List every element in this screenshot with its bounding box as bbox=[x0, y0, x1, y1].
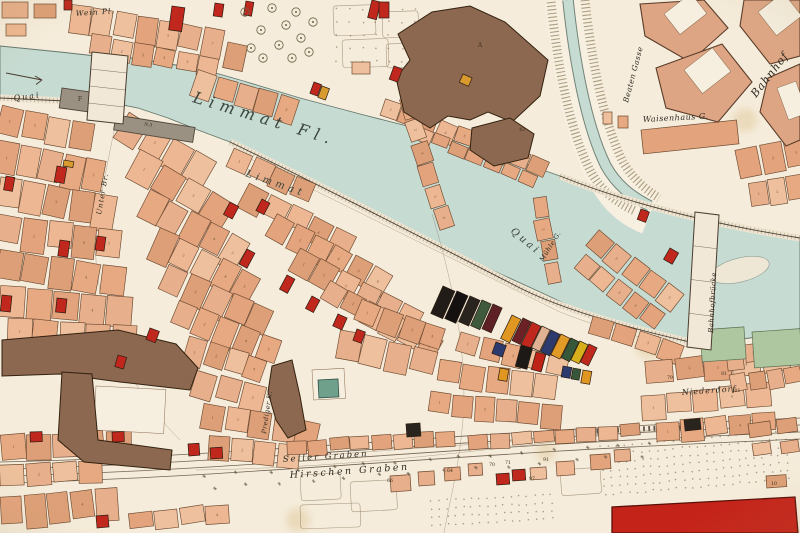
parcel-number: 4 bbox=[745, 362, 747, 366]
highlighted-building bbox=[571, 368, 581, 380]
building bbox=[452, 395, 474, 418]
building bbox=[352, 62, 370, 74]
courtyard bbox=[94, 386, 166, 434]
building bbox=[2, 2, 28, 18]
building bbox=[34, 4, 56, 18]
marker-10: 10 bbox=[771, 481, 777, 487]
building bbox=[0, 464, 24, 486]
building bbox=[598, 426, 618, 440]
marker-91: 91 bbox=[543, 457, 549, 463]
building bbox=[48, 256, 75, 291]
historical-map: 5723455145682356225343121532454414512134… bbox=[0, 0, 800, 533]
highlighted-building bbox=[58, 240, 70, 257]
building bbox=[24, 494, 48, 530]
building bbox=[6, 24, 26, 36]
building bbox=[510, 370, 534, 397]
highlighted-building bbox=[581, 370, 592, 384]
highlighted-building bbox=[213, 3, 224, 17]
building bbox=[154, 509, 179, 530]
building bbox=[100, 265, 127, 296]
building bbox=[704, 415, 728, 435]
parcel-number: 5 bbox=[108, 241, 111, 245]
building bbox=[555, 429, 575, 443]
parcel-number: 1 bbox=[667, 430, 669, 434]
parcel-number: 1 bbox=[19, 330, 21, 334]
building bbox=[52, 461, 77, 482]
highlighted-building bbox=[95, 236, 106, 251]
building bbox=[576, 427, 596, 442]
map-canvas: 5723455145682356225343121532454414512134… bbox=[0, 0, 800, 533]
marker-79: 79 bbox=[667, 375, 673, 381]
building bbox=[390, 475, 411, 492]
highlighted-building bbox=[210, 447, 223, 459]
building bbox=[26, 288, 53, 320]
building bbox=[620, 423, 640, 437]
parcel-number: 4 bbox=[731, 395, 734, 399]
building bbox=[418, 471, 435, 486]
building bbox=[533, 373, 558, 399]
building bbox=[350, 436, 370, 450]
highlighted-building bbox=[96, 515, 109, 528]
building bbox=[533, 196, 549, 218]
highlighted-building bbox=[56, 298, 67, 313]
highlighted-building bbox=[112, 432, 124, 442]
building bbox=[105, 295, 133, 327]
marker-70: 70 bbox=[489, 462, 495, 468]
building bbox=[496, 399, 517, 422]
building bbox=[517, 402, 540, 425]
building bbox=[533, 430, 554, 443]
building bbox=[79, 461, 103, 484]
parcel-number: 4 bbox=[83, 241, 86, 245]
building bbox=[44, 117, 70, 148]
building bbox=[435, 431, 455, 447]
parcel-number: 1 bbox=[12, 445, 15, 449]
building bbox=[330, 436, 350, 450]
highlighted-building bbox=[561, 366, 572, 378]
highlighted-building bbox=[30, 432, 42, 442]
parcel-number: 3 bbox=[716, 366, 718, 370]
building bbox=[0, 496, 22, 524]
building bbox=[556, 461, 575, 476]
highlighted-building bbox=[63, 160, 74, 168]
parcel-number: 1 bbox=[652, 406, 654, 410]
marker-81: 81 bbox=[721, 371, 727, 377]
marker-f: F bbox=[78, 96, 82, 103]
highlighted-building bbox=[4, 176, 15, 191]
parcel-number: 2 bbox=[38, 473, 40, 477]
parcel-number: 4 bbox=[739, 423, 741, 427]
highlighted-building bbox=[0, 295, 12, 312]
building bbox=[113, 11, 137, 38]
building bbox=[437, 359, 461, 383]
parcel-number: 2 bbox=[241, 448, 243, 452]
building bbox=[618, 116, 628, 128]
building bbox=[468, 463, 483, 476]
cloister-garden bbox=[318, 379, 339, 398]
building bbox=[46, 491, 70, 524]
parcel-number: 3 bbox=[484, 408, 486, 412]
building bbox=[252, 441, 276, 466]
building bbox=[783, 366, 800, 384]
building bbox=[767, 368, 785, 389]
parcel-number: 4 bbox=[216, 513, 218, 517]
building bbox=[776, 417, 798, 434]
building bbox=[540, 404, 562, 430]
building bbox=[490, 433, 510, 449]
building bbox=[20, 253, 48, 284]
highlighted-building bbox=[379, 2, 389, 18]
marker-64: 64 bbox=[447, 468, 453, 474]
building bbox=[468, 434, 488, 450]
parcel-number: 4 bbox=[91, 308, 94, 312]
highlighted-building bbox=[406, 423, 421, 437]
marker-71: 71 bbox=[505, 460, 511, 466]
building bbox=[603, 112, 612, 124]
building bbox=[372, 434, 393, 450]
building bbox=[752, 441, 771, 455]
marker-97: 97 bbox=[529, 476, 535, 482]
building bbox=[135, 16, 159, 47]
building bbox=[748, 421, 772, 438]
building bbox=[128, 511, 153, 529]
building bbox=[614, 449, 631, 462]
highlighted-building bbox=[512, 469, 526, 481]
highlighted-building bbox=[188, 443, 200, 456]
marker-n.3: N.3 bbox=[144, 121, 153, 128]
highlighted-building bbox=[64, 0, 72, 10]
building bbox=[590, 454, 611, 470]
building bbox=[459, 364, 486, 392]
marker-43: 43 bbox=[519, 127, 525, 133]
building bbox=[69, 121, 95, 151]
highlighted-building bbox=[498, 368, 509, 381]
building bbox=[179, 505, 205, 525]
highlighted-building bbox=[684, 418, 701, 431]
building bbox=[749, 371, 767, 390]
marker-66: 66 bbox=[387, 478, 393, 484]
highlighted-building bbox=[496, 473, 510, 485]
building bbox=[780, 439, 799, 453]
building bbox=[511, 431, 532, 445]
marker-a: A bbox=[477, 42, 483, 49]
building bbox=[0, 249, 24, 281]
